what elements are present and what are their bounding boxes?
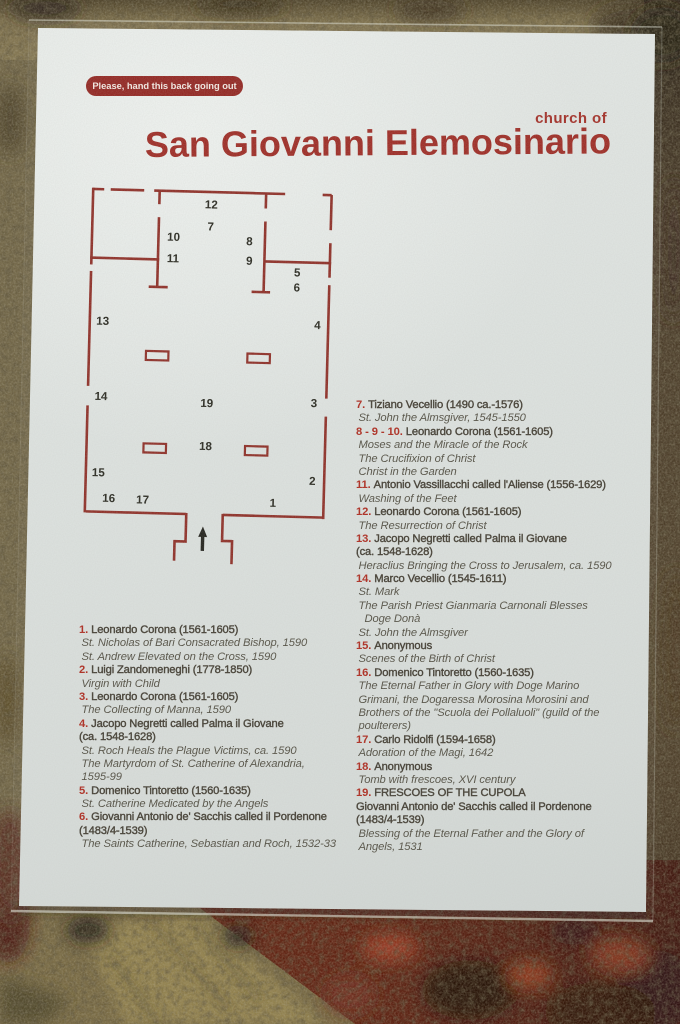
svg-text:19: 19 (200, 397, 214, 410)
svg-text:5: 5 (294, 266, 301, 279)
svg-text:3: 3 (311, 397, 318, 410)
svg-text:17: 17 (136, 493, 149, 506)
svg-text:6: 6 (293, 281, 300, 294)
svg-text:12: 12 (205, 198, 218, 211)
svg-text:16: 16 (102, 492, 116, 505)
svg-text:11: 11 (167, 252, 180, 265)
svg-text:7: 7 (207, 220, 214, 233)
svg-text:2: 2 (309, 475, 316, 488)
svg-text:18: 18 (199, 440, 213, 453)
svg-text:1: 1 (269, 497, 276, 510)
svg-text:8: 8 (246, 235, 253, 248)
svg-text:4: 4 (314, 319, 321, 332)
svg-text:9: 9 (246, 255, 253, 268)
svg-text:10: 10 (167, 231, 180, 244)
svg-text:15: 15 (92, 466, 106, 479)
svg-text:14: 14 (94, 390, 108, 403)
svg-text:13: 13 (96, 315, 110, 328)
